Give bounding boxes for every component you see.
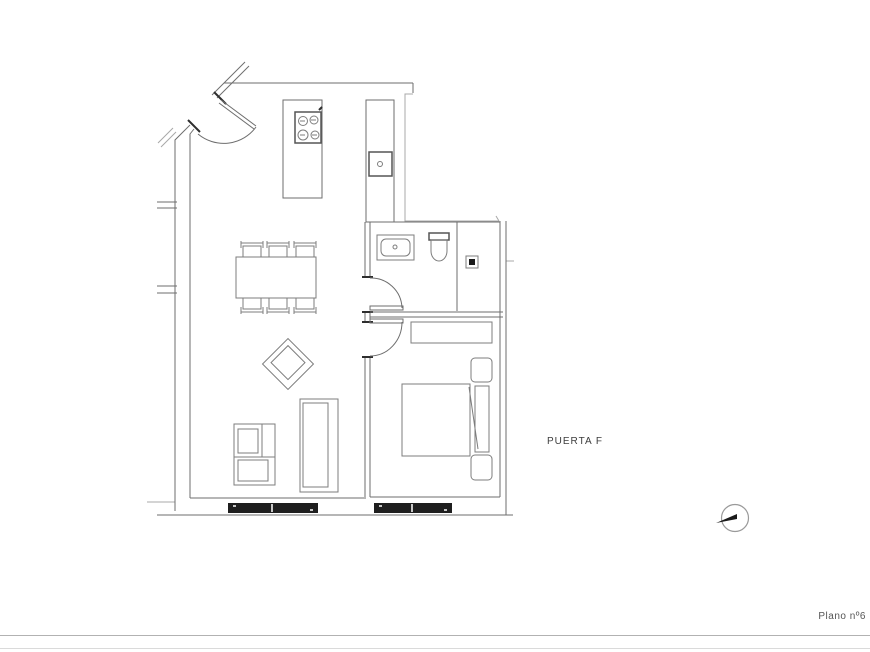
bathroom-door-leaf — [370, 306, 403, 310]
room-divider-wall — [366, 222, 503, 317]
top-wall — [224, 83, 413, 93]
dining-chair — [241, 241, 263, 257]
bedroom-door-leaf — [370, 319, 403, 323]
north-arrow-icon — [716, 514, 737, 523]
right-wall — [500, 221, 506, 515]
entrance-door-swing-arc — [198, 127, 256, 143]
sofa — [300, 399, 338, 492]
shower-area — [457, 222, 478, 311]
left-wall-joint-ticks — [157, 202, 177, 293]
bedroom-door — [370, 319, 403, 356]
armchair — [263, 339, 314, 390]
cooktop — [295, 107, 322, 143]
bedroom-window — [374, 503, 452, 513]
dining-chair — [294, 241, 316, 257]
toilet — [429, 233, 449, 261]
bed-mattress — [402, 384, 470, 456]
title-block-rule-2 — [0, 648, 870, 649]
bed — [402, 384, 489, 456]
bathroom-door — [370, 278, 403, 310]
dining-chairs — [241, 241, 316, 314]
title-block-rule — [0, 635, 870, 636]
sheet-number-label: Plano nº6 — [818, 611, 866, 622]
dining-chair — [241, 298, 263, 314]
dining-table — [236, 257, 316, 298]
dining-chair — [294, 298, 316, 314]
door-label-puerta-f: PUERTA F — [547, 436, 603, 447]
neighbor-boundary — [147, 94, 514, 502]
dining-chair — [267, 298, 289, 314]
entrance-door-leaf — [219, 100, 256, 129]
bathroom-sink — [377, 235, 414, 260]
counter-sink — [369, 152, 392, 176]
tv-cabinet — [234, 424, 275, 485]
bottom-wall — [157, 497, 513, 515]
living-room-window — [228, 503, 318, 513]
shower-drain-icon — [469, 259, 475, 265]
nightstand — [471, 455, 492, 480]
north-indicator — [716, 505, 749, 532]
floorplan-drawing — [0, 0, 870, 652]
wardrobe — [411, 322, 492, 343]
door-jamb — [188, 120, 200, 132]
bedroom-door-swing-arc — [370, 322, 402, 356]
nightstand — [471, 358, 492, 382]
bathroom-door-swing-arc — [370, 278, 402, 308]
hall-wall — [365, 222, 370, 497]
floorplan-sheet: PUERTA F Plano nº6 — [0, 0, 870, 652]
dining-chair — [267, 241, 289, 257]
entrance-door — [188, 92, 256, 143]
kitchen-island — [283, 100, 322, 198]
